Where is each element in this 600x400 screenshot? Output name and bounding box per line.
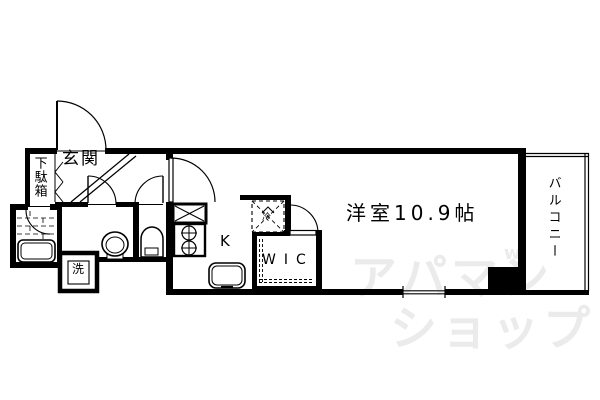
washing-machine-label: 洗 [72, 263, 84, 276]
washbasin [102, 232, 128, 259]
window [403, 286, 445, 298]
kitchen-label: K [220, 234, 230, 250]
toilet-door [135, 176, 163, 204]
refrigerator-label: 冷 [262, 214, 271, 223]
bathtub [18, 240, 55, 262]
floor-plan-drawing [0, 0, 600, 400]
main-room-label: 洋室10.9帖 [346, 203, 479, 224]
bathroom-tile-floor [17, 211, 56, 240]
floor-plan: 玄関 下駄箱 洗 冷 K WIC 洋室10.9帖 バルコニー アパマン ショップ… [0, 0, 600, 400]
washroom-door [88, 176, 116, 204]
shoe-cabinet-label: 下駄箱 [32, 156, 46, 198]
corner-pillar [488, 267, 526, 295]
range-box [173, 204, 206, 223]
balcony-label: バルコニー [546, 176, 560, 261]
kitchen-door [169, 158, 215, 202]
stove-burners [174, 224, 205, 256]
entrance-label: 玄関 [62, 151, 100, 169]
kitchen-sink [209, 263, 245, 288]
wic-door [290, 205, 318, 235]
entry-door [57, 101, 106, 150]
walk-in-closet-label: WIC [262, 253, 314, 268]
toilet [141, 227, 163, 257]
